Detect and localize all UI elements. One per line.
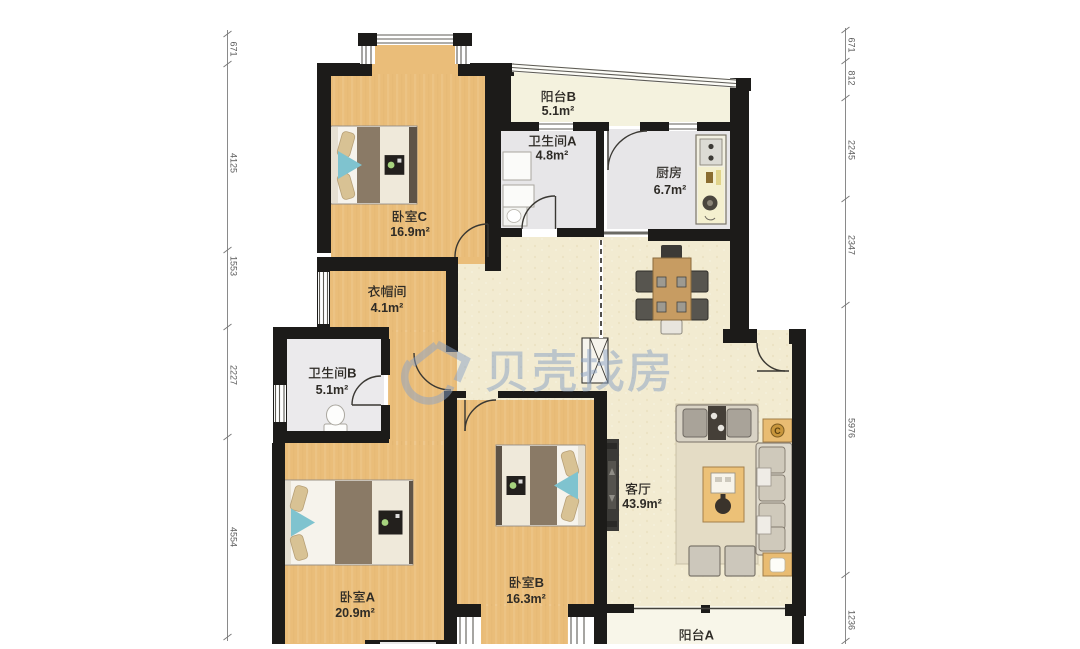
svg-text:A: A <box>705 628 715 643</box>
svg-text:B: B <box>347 366 356 381</box>
svg-text:C: C <box>774 426 781 436</box>
svg-text:20.9m²: 20.9m² <box>335 606 375 620</box>
svg-text:5.1m²: 5.1m² <box>316 383 349 397</box>
svg-text:2245: 2245 <box>846 140 856 160</box>
svg-text:1553: 1553 <box>228 256 238 276</box>
svg-text:812: 812 <box>846 70 856 85</box>
svg-text:A: A <box>366 590 376 605</box>
svg-text:B: B <box>567 89 576 104</box>
svg-text:4.8m²: 4.8m² <box>536 149 569 163</box>
svg-text:5.1m²: 5.1m² <box>542 104 575 118</box>
svg-text:671: 671 <box>846 37 856 52</box>
svg-text:C: C <box>418 209 428 224</box>
svg-text:6.7m²: 6.7m² <box>654 183 687 197</box>
svg-text:2347: 2347 <box>846 235 856 255</box>
svg-text:B: B <box>535 575 544 590</box>
svg-text:4554: 4554 <box>228 527 238 547</box>
svg-text:5976: 5976 <box>846 418 856 438</box>
svg-text:2227: 2227 <box>228 365 238 385</box>
svg-text:1236: 1236 <box>846 610 856 630</box>
svg-text:671: 671 <box>228 41 238 56</box>
svg-text:43.9m²: 43.9m² <box>622 497 662 511</box>
svg-text:16.9m²: 16.9m² <box>390 225 430 239</box>
svg-text:A: A <box>567 134 577 149</box>
svg-text:16.3m²: 16.3m² <box>506 592 546 606</box>
svg-text:4125: 4125 <box>228 153 238 173</box>
svg-text:4.1m²: 4.1m² <box>371 301 404 315</box>
